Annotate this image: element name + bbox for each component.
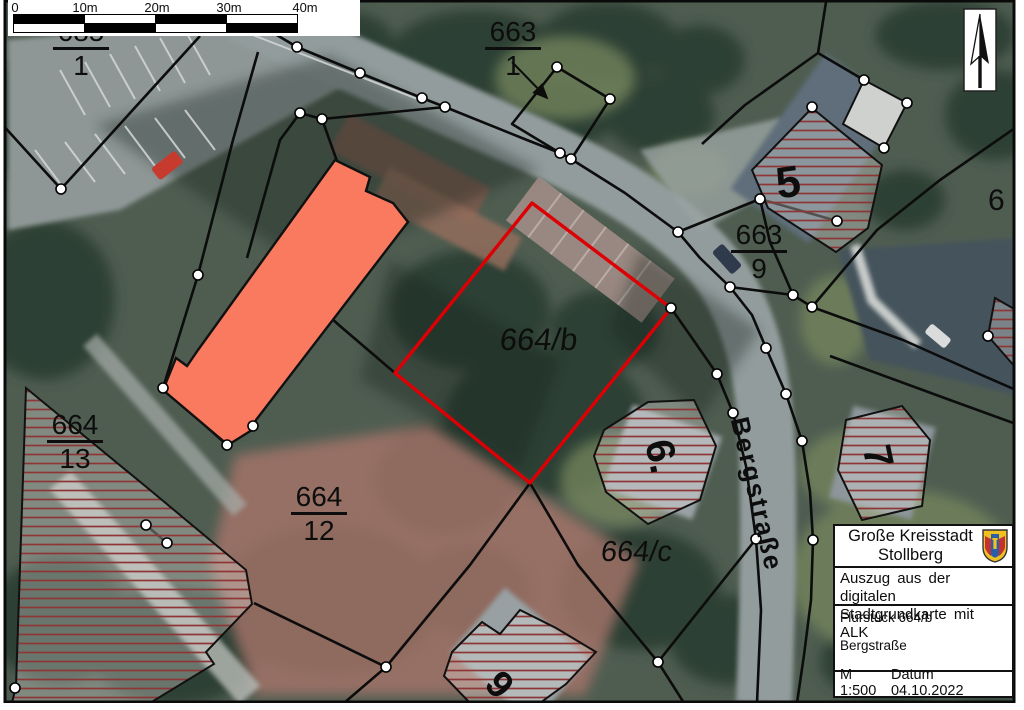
parcel-label-664b: 664/b <box>498 322 580 358</box>
parcel-label-663-1: 663 1 <box>480 17 546 81</box>
parcel-label-663-9: 663 9 <box>727 220 791 284</box>
info-box-footer: M 1:500 Datum 04.10.2022 <box>835 672 1012 694</box>
parcel-detail-label: Flurstück 664/b <box>840 610 1007 625</box>
scale-bar: 0 10m 20m 30m 40m <box>8 0 360 36</box>
page-margin <box>0 703 1024 710</box>
parcel-label-664c: 664/c <box>599 536 674 569</box>
scale-tick-label: 0 <box>11 0 18 15</box>
map-date-text: Datum 04.10.2022 <box>891 667 1007 699</box>
map-scale-text: M 1:500 <box>840 667 891 699</box>
scale-tick-label: 20m <box>144 0 169 15</box>
page-margin <box>1016 0 1024 710</box>
street-detail-label: Bergstraße <box>840 638 1007 653</box>
info-box: Große Kreisstadt Stollberg Auszug aus de… <box>833 524 1014 698</box>
cadastral-map-extract: 0 10m 20m 30m 40m 685 1 663 1 663 9 664 … <box>0 0 1024 710</box>
info-box-header: Große Kreisstadt Stollberg <box>835 526 1012 568</box>
parcel-label-664-13: 664 13 <box>42 410 108 474</box>
scale-tick-label: 40m <box>292 0 317 15</box>
north-arrow-icon <box>963 8 997 92</box>
parcel-label-664-12: 664 12 <box>286 482 352 546</box>
municipality-title: Große Kreisstadt Stollberg <box>839 527 982 565</box>
page-margin <box>0 0 3 710</box>
scale-tick-label: 30m <box>216 0 241 15</box>
scale-tick-label: 10m <box>72 0 97 15</box>
map-type-subtitle: Auszug aus der digitalen Stadtgrundkarte… <box>835 568 1012 606</box>
parcel-details: Flurstück 664/b Bergstraße <box>835 606 1012 672</box>
parcel-label-edge-6: 6 <box>988 184 1005 218</box>
stollberg-crest-icon <box>982 529 1008 563</box>
scale-bar-row <box>13 23 298 33</box>
